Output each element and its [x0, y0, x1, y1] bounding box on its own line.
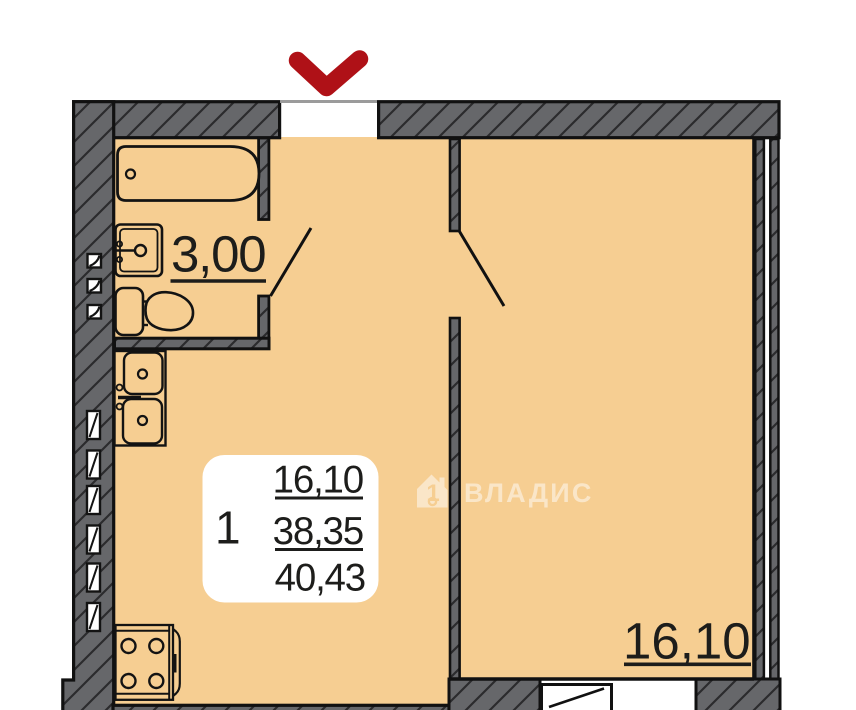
svg-text:38,35: 38,35 [273, 510, 363, 553]
svg-text:3,00: 3,00 [171, 226, 265, 283]
svg-text:ВЛАДИС: ВЛАДИС [464, 478, 594, 508]
svg-text:16,10: 16,10 [623, 613, 751, 670]
svg-text:40,43: 40,43 [275, 557, 365, 600]
svg-text:1: 1 [215, 502, 241, 554]
svg-text:16,10: 16,10 [273, 459, 363, 502]
